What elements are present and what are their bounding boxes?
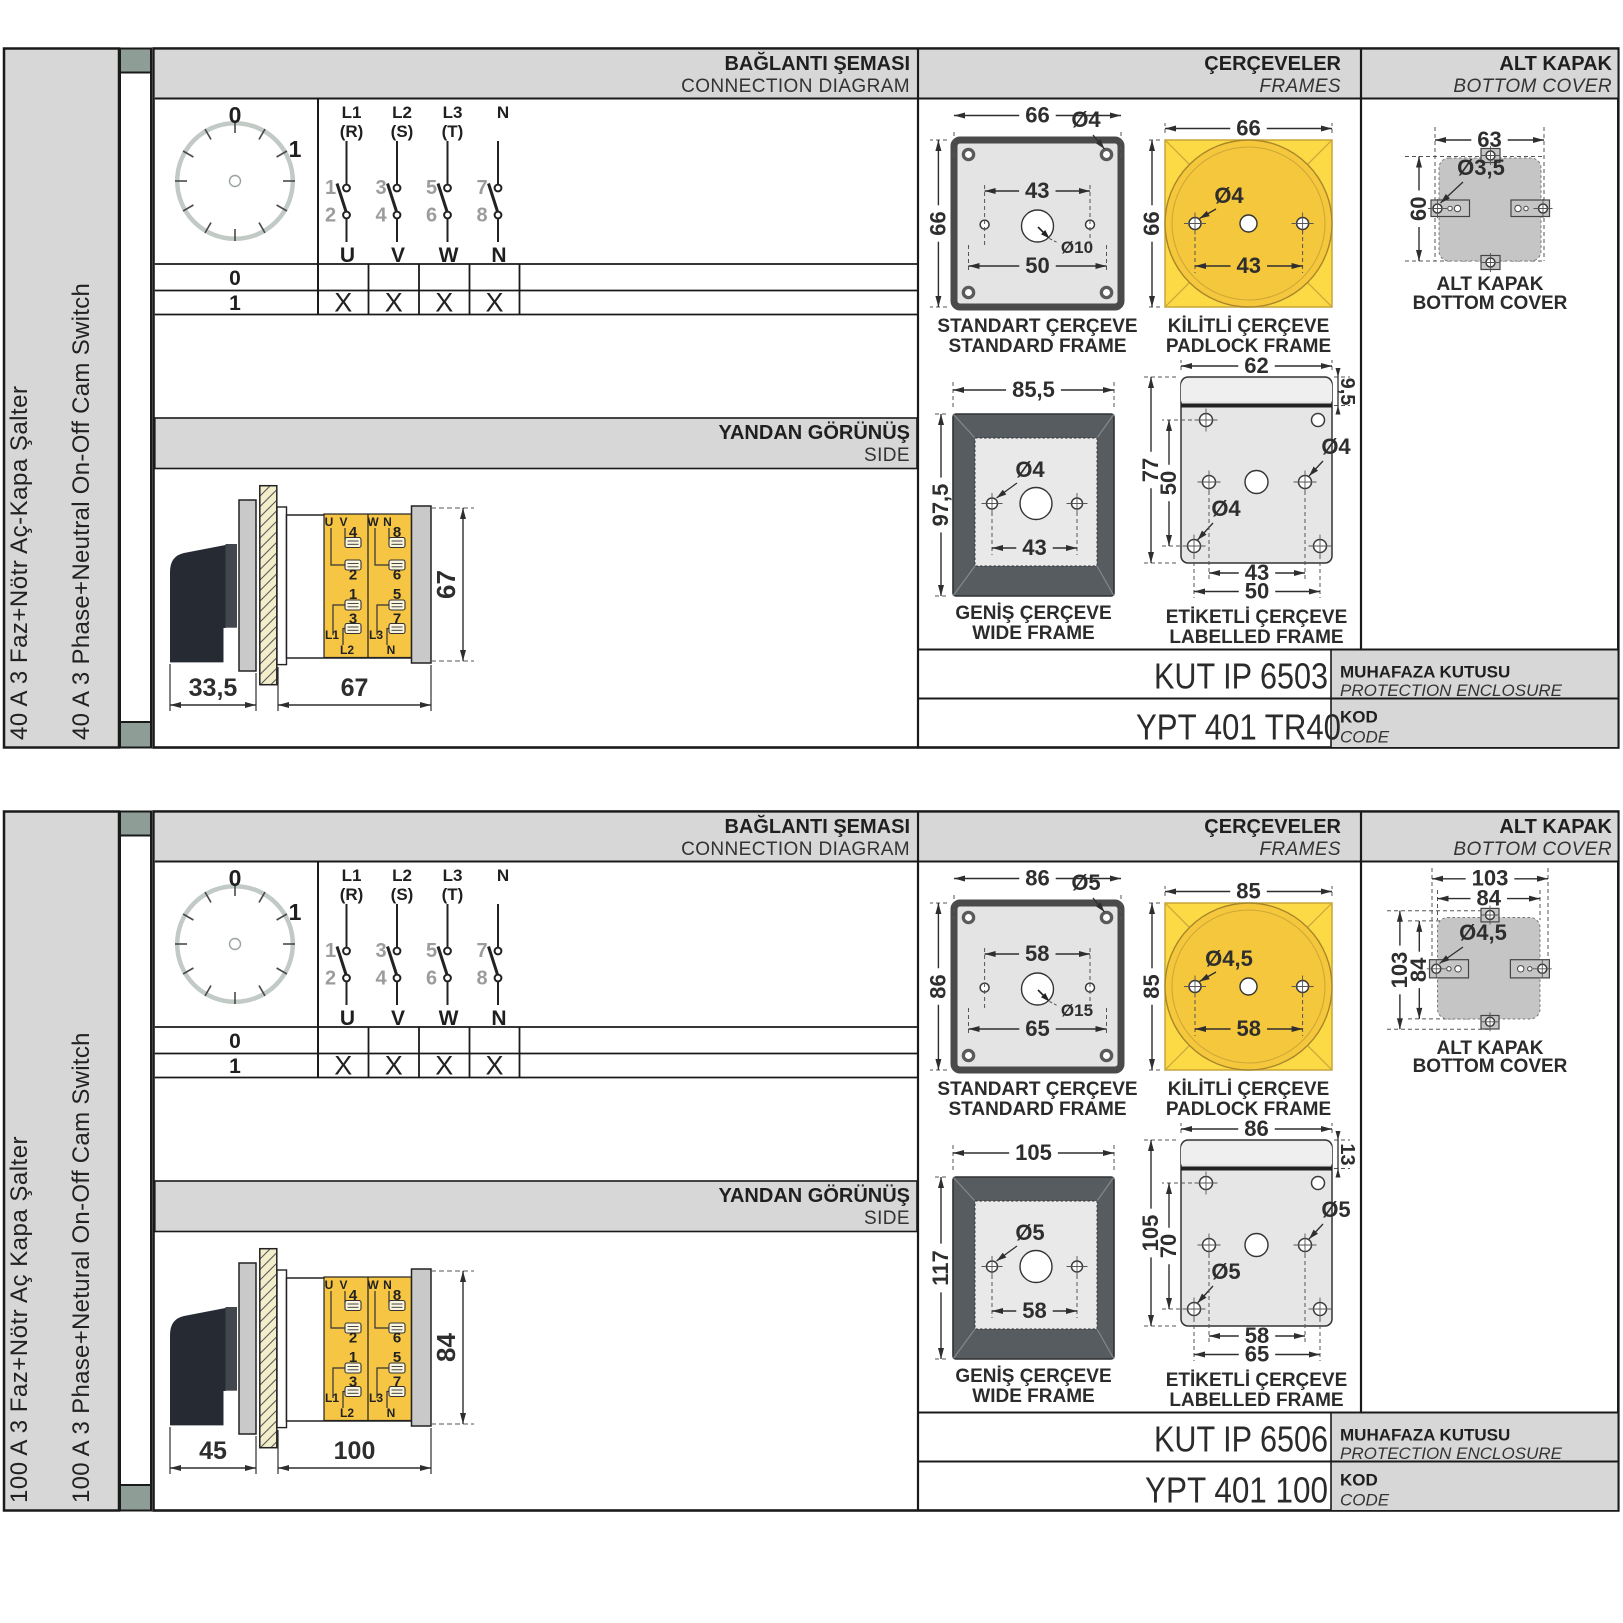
svg-text:66: 66 bbox=[925, 211, 950, 235]
svg-text:58: 58 bbox=[1025, 940, 1049, 965]
svg-text:L2: L2 bbox=[392, 103, 412, 122]
svg-text:Ø10: Ø10 bbox=[1061, 238, 1093, 257]
svg-text:1: 1 bbox=[289, 899, 302, 925]
svg-text:7: 7 bbox=[476, 940, 487, 962]
svg-text:ÇERÇEVELER: ÇERÇEVELER bbox=[1204, 816, 1341, 838]
svg-text:100 A 3 Faz+Nötr Aç Kapa Şalte: 100 A 3 Faz+Nötr Aç Kapa Şalter bbox=[6, 1135, 33, 1502]
svg-text:1: 1 bbox=[289, 136, 302, 162]
svg-text:2: 2 bbox=[325, 967, 336, 989]
svg-text:5: 5 bbox=[393, 586, 401, 603]
svg-text:Ø5: Ø5 bbox=[1071, 870, 1100, 895]
svg-text:6: 6 bbox=[426, 967, 437, 989]
svg-text:3: 3 bbox=[375, 940, 386, 962]
svg-text:ALT KAPAK: ALT KAPAK bbox=[1437, 274, 1544, 295]
svg-text:SIDE: SIDE bbox=[864, 445, 910, 466]
svg-text:1: 1 bbox=[229, 292, 241, 315]
svg-text:0: 0 bbox=[229, 102, 242, 128]
svg-text:L2: L2 bbox=[340, 1406, 354, 1420]
svg-text:Ø4: Ø4 bbox=[1071, 107, 1101, 132]
svg-text:ALT KAPAK: ALT KAPAK bbox=[1499, 816, 1612, 838]
svg-text:Ø5: Ø5 bbox=[1211, 1259, 1240, 1284]
svg-text:66: 66 bbox=[1139, 211, 1164, 235]
svg-text:L2: L2 bbox=[392, 866, 412, 885]
svg-text:W: W bbox=[367, 515, 379, 529]
svg-text:86: 86 bbox=[1244, 1115, 1268, 1140]
svg-text:L1: L1 bbox=[325, 1391, 339, 1405]
svg-text:Ø4: Ø4 bbox=[1214, 183, 1244, 208]
svg-text:1: 1 bbox=[349, 1349, 357, 1366]
svg-text:Ø4,5: Ø4,5 bbox=[1459, 920, 1507, 945]
svg-text:2: 2 bbox=[349, 1329, 357, 1346]
svg-text:43: 43 bbox=[1022, 534, 1046, 559]
svg-text:(S): (S) bbox=[391, 122, 414, 141]
svg-text:KİLİTLİ ÇERÇEVE: KİLİTLİ ÇERÇEVE bbox=[1168, 1079, 1330, 1100]
svg-text:66: 66 bbox=[1025, 102, 1049, 127]
svg-text:117: 117 bbox=[928, 1250, 953, 1286]
svg-text:62: 62 bbox=[1244, 352, 1268, 377]
svg-text:2: 2 bbox=[349, 566, 357, 583]
svg-text:MUHAFAZA KUTUSU: MUHAFAZA KUTUSU bbox=[1340, 1425, 1510, 1444]
svg-text:SIDE: SIDE bbox=[864, 1208, 910, 1229]
svg-text:86: 86 bbox=[925, 974, 950, 998]
svg-text:N: N bbox=[387, 643, 396, 657]
svg-text:BOTTOM COVER: BOTTOM COVER bbox=[1413, 1056, 1568, 1077]
svg-text:2: 2 bbox=[325, 204, 336, 226]
svg-text:W: W bbox=[367, 1278, 379, 1292]
svg-text:3: 3 bbox=[349, 610, 357, 627]
svg-text:WIDE FRAME: WIDE FRAME bbox=[972, 1386, 1094, 1407]
svg-text:1: 1 bbox=[325, 177, 336, 199]
svg-text:X: X bbox=[385, 287, 403, 317]
svg-text:Ø4: Ø4 bbox=[1211, 496, 1241, 521]
svg-text:40 A 3 Faz+Nötr Aç-Kapa Şalter: 40 A 3 Faz+Nötr Aç-Kapa Şalter bbox=[6, 385, 33, 740]
svg-text:YANDAN GÖRÜNÜŞ: YANDAN GÖRÜNÜŞ bbox=[718, 1184, 910, 1207]
svg-text:6: 6 bbox=[426, 204, 437, 226]
svg-text:Ø4,5: Ø4,5 bbox=[1205, 946, 1253, 971]
svg-text:43: 43 bbox=[1025, 177, 1049, 202]
svg-text:1: 1 bbox=[349, 586, 357, 603]
svg-text:4: 4 bbox=[349, 1287, 358, 1304]
svg-text:Ø4: Ø4 bbox=[1321, 434, 1351, 459]
svg-text:KOD: KOD bbox=[1340, 1470, 1378, 1489]
svg-text:N: N bbox=[497, 866, 509, 885]
svg-text:100 A 3 Phase+Netural On-Off C: 100 A 3 Phase+Netural On-Off Cam Switch bbox=[68, 1032, 95, 1503]
svg-text:N: N bbox=[387, 1406, 396, 1420]
svg-text:BOTTOM COVER: BOTTOM COVER bbox=[1453, 839, 1612, 860]
svg-text:LABELLED FRAME: LABELLED FRAME bbox=[1169, 627, 1343, 648]
svg-text:WIDE FRAME: WIDE FRAME bbox=[972, 623, 1094, 644]
svg-text:(R): (R) bbox=[340, 122, 364, 141]
svg-text:(T): (T) bbox=[442, 885, 464, 904]
svg-text:STANDARD FRAME: STANDARD FRAME bbox=[948, 336, 1126, 357]
svg-text:GENİŞ ÇERÇEVE: GENİŞ ÇERÇEVE bbox=[955, 603, 1111, 624]
svg-text:KİLİTLİ ÇERÇEVE: KİLİTLİ ÇERÇEVE bbox=[1168, 316, 1330, 337]
svg-text:X: X bbox=[334, 287, 352, 317]
svg-text:84: 84 bbox=[431, 1332, 461, 1361]
svg-text:CODE: CODE bbox=[1340, 1490, 1390, 1509]
svg-text:Ø3,5: Ø3,5 bbox=[1457, 155, 1505, 180]
svg-text:X: X bbox=[435, 1050, 453, 1080]
svg-text:V: V bbox=[339, 1278, 347, 1292]
svg-text:N: N bbox=[383, 1278, 392, 1292]
svg-text:N: N bbox=[497, 103, 509, 122]
svg-text:Ø15: Ø15 bbox=[1061, 1001, 1093, 1020]
svg-text:Ø4: Ø4 bbox=[1015, 457, 1045, 482]
svg-text:YANDAN GÖRÜNÜŞ: YANDAN GÖRÜNÜŞ bbox=[718, 421, 910, 444]
svg-text:60: 60 bbox=[1406, 196, 1431, 220]
svg-text:58: 58 bbox=[1237, 1015, 1261, 1040]
svg-text:8: 8 bbox=[476, 204, 487, 226]
svg-text:U: U bbox=[325, 515, 334, 529]
svg-text:(S): (S) bbox=[391, 885, 414, 904]
svg-text:5: 5 bbox=[426, 177, 437, 199]
svg-text:7: 7 bbox=[393, 610, 401, 627]
svg-text:L2: L2 bbox=[340, 643, 354, 657]
svg-text:X: X bbox=[485, 1050, 503, 1080]
svg-text:CONNECTION DIAGRAM: CONNECTION DIAGRAM bbox=[681, 76, 910, 97]
svg-text:43: 43 bbox=[1237, 252, 1261, 277]
svg-text:3: 3 bbox=[375, 177, 386, 199]
svg-text:70: 70 bbox=[1156, 1233, 1181, 1257]
svg-text:ETİKETLİ ÇERÇEVE: ETİKETLİ ÇERÇEVE bbox=[1166, 607, 1348, 628]
svg-text:L3: L3 bbox=[369, 628, 383, 642]
svg-text:V: V bbox=[339, 515, 347, 529]
svg-text:67: 67 bbox=[431, 570, 461, 599]
svg-text:50: 50 bbox=[1156, 470, 1181, 494]
svg-text:97,5: 97,5 bbox=[928, 483, 953, 526]
svg-text:GENİŞ ÇERÇEVE: GENİŞ ÇERÇEVE bbox=[955, 1366, 1111, 1387]
svg-text:MUHAFAZA KUTUSU: MUHAFAZA KUTUSU bbox=[1340, 662, 1510, 681]
svg-text:STANDART ÇERÇEVE: STANDART ÇERÇEVE bbox=[937, 316, 1137, 337]
svg-text:ETİKETLİ ÇERÇEVE: ETİKETLİ ÇERÇEVE bbox=[1166, 1370, 1348, 1391]
svg-text:U: U bbox=[325, 1278, 334, 1292]
svg-text:L3: L3 bbox=[443, 103, 463, 122]
svg-text:BOTTOM COVER: BOTTOM COVER bbox=[1413, 293, 1568, 314]
svg-text:X: X bbox=[334, 1050, 352, 1080]
svg-text:ÇERÇEVELER: ÇERÇEVELER bbox=[1204, 53, 1341, 75]
svg-text:50: 50 bbox=[1245, 578, 1269, 603]
svg-text:LABELLED FRAME: LABELLED FRAME bbox=[1169, 1390, 1343, 1411]
svg-text:65: 65 bbox=[1245, 1341, 1269, 1366]
svg-text:KOD: KOD bbox=[1340, 707, 1378, 726]
svg-text:105: 105 bbox=[1015, 1139, 1052, 1164]
svg-text:(T): (T) bbox=[442, 122, 464, 141]
svg-text:0: 0 bbox=[229, 865, 242, 891]
svg-text:84: 84 bbox=[1406, 956, 1431, 981]
svg-text:85,5: 85,5 bbox=[1012, 376, 1055, 401]
svg-text:1: 1 bbox=[325, 940, 336, 962]
svg-text:X: X bbox=[385, 1050, 403, 1080]
svg-text:CODE: CODE bbox=[1340, 727, 1390, 746]
svg-text:6: 6 bbox=[393, 1329, 401, 1346]
svg-text:65: 65 bbox=[1025, 1015, 1049, 1040]
svg-text:X: X bbox=[435, 287, 453, 317]
svg-text:85: 85 bbox=[1236, 878, 1260, 903]
svg-text:67: 67 bbox=[341, 674, 369, 702]
svg-text:L1: L1 bbox=[342, 866, 362, 885]
svg-text:50: 50 bbox=[1025, 252, 1049, 277]
svg-text:BOTTOM COVER: BOTTOM COVER bbox=[1453, 76, 1612, 97]
svg-text:Ø5: Ø5 bbox=[1321, 1197, 1350, 1222]
svg-text:66: 66 bbox=[1236, 115, 1260, 140]
svg-text:86: 86 bbox=[1025, 865, 1049, 890]
svg-text:PROTECTION ENCLOSURE: PROTECTION ENCLOSURE bbox=[1340, 1444, 1563, 1463]
svg-text:13: 13 bbox=[1336, 1143, 1358, 1165]
svg-text:L1: L1 bbox=[342, 103, 362, 122]
svg-text:8: 8 bbox=[476, 967, 487, 989]
svg-text:8: 8 bbox=[393, 524, 401, 541]
svg-text:YPT 401 TR40: YPT 401 TR40 bbox=[1136, 706, 1341, 747]
svg-text:X: X bbox=[485, 287, 503, 317]
svg-text:1: 1 bbox=[229, 1055, 241, 1078]
svg-text:PROTECTION ENCLOSURE: PROTECTION ENCLOSURE bbox=[1340, 681, 1563, 700]
svg-text:40 A 3 Phase+Neutral On-Off Ca: 40 A 3 Phase+Neutral On-Off Cam Switch bbox=[68, 282, 95, 739]
svg-text:7: 7 bbox=[476, 177, 487, 199]
svg-text:85: 85 bbox=[1139, 974, 1164, 998]
svg-text:BAĞLANTI ŞEMASI: BAĞLANTI ŞEMASI bbox=[724, 51, 910, 75]
svg-text:58: 58 bbox=[1022, 1297, 1046, 1322]
svg-text:4: 4 bbox=[375, 967, 387, 989]
svg-text:33,5: 33,5 bbox=[189, 674, 238, 702]
svg-text:6: 6 bbox=[393, 566, 401, 583]
svg-text:BAĞLANTI ŞEMASI: BAĞLANTI ŞEMASI bbox=[724, 814, 910, 838]
svg-text:ALT KAPAK: ALT KAPAK bbox=[1499, 53, 1612, 75]
svg-text:KUT IP 6503: KUT IP 6503 bbox=[1154, 655, 1328, 696]
svg-text:9,5: 9,5 bbox=[1336, 377, 1358, 405]
svg-text:Ø5: Ø5 bbox=[1015, 1220, 1044, 1245]
svg-text:N: N bbox=[383, 515, 392, 529]
svg-text:0: 0 bbox=[229, 1030, 241, 1053]
svg-text:(R): (R) bbox=[340, 885, 364, 904]
svg-text:KUT IP 6506: KUT IP 6506 bbox=[1154, 1418, 1328, 1459]
svg-text:FRAMES: FRAMES bbox=[1259, 76, 1341, 97]
svg-text:84: 84 bbox=[1477, 885, 1502, 910]
svg-text:45: 45 bbox=[199, 1437, 227, 1465]
svg-text:8: 8 bbox=[393, 1287, 401, 1304]
svg-text:L1: L1 bbox=[325, 628, 339, 642]
svg-text:CONNECTION DIAGRAM: CONNECTION DIAGRAM bbox=[681, 839, 910, 860]
svg-text:5: 5 bbox=[393, 1349, 401, 1366]
svg-text:L3: L3 bbox=[443, 866, 463, 885]
svg-text:7: 7 bbox=[393, 1373, 401, 1390]
svg-text:FRAMES: FRAMES bbox=[1259, 839, 1341, 860]
svg-text:4: 4 bbox=[349, 524, 358, 541]
svg-text:L3: L3 bbox=[369, 1391, 383, 1405]
svg-text:STANDART ÇERÇEVE: STANDART ÇERÇEVE bbox=[937, 1079, 1137, 1100]
svg-text:0: 0 bbox=[229, 267, 241, 290]
svg-text:5: 5 bbox=[426, 940, 437, 962]
svg-text:100: 100 bbox=[334, 1437, 376, 1465]
svg-text:YPT 401 100: YPT 401 100 bbox=[1145, 1469, 1328, 1510]
svg-text:4: 4 bbox=[375, 204, 387, 226]
svg-text:3: 3 bbox=[349, 1373, 357, 1390]
svg-text:STANDARD FRAME: STANDARD FRAME bbox=[948, 1099, 1126, 1120]
